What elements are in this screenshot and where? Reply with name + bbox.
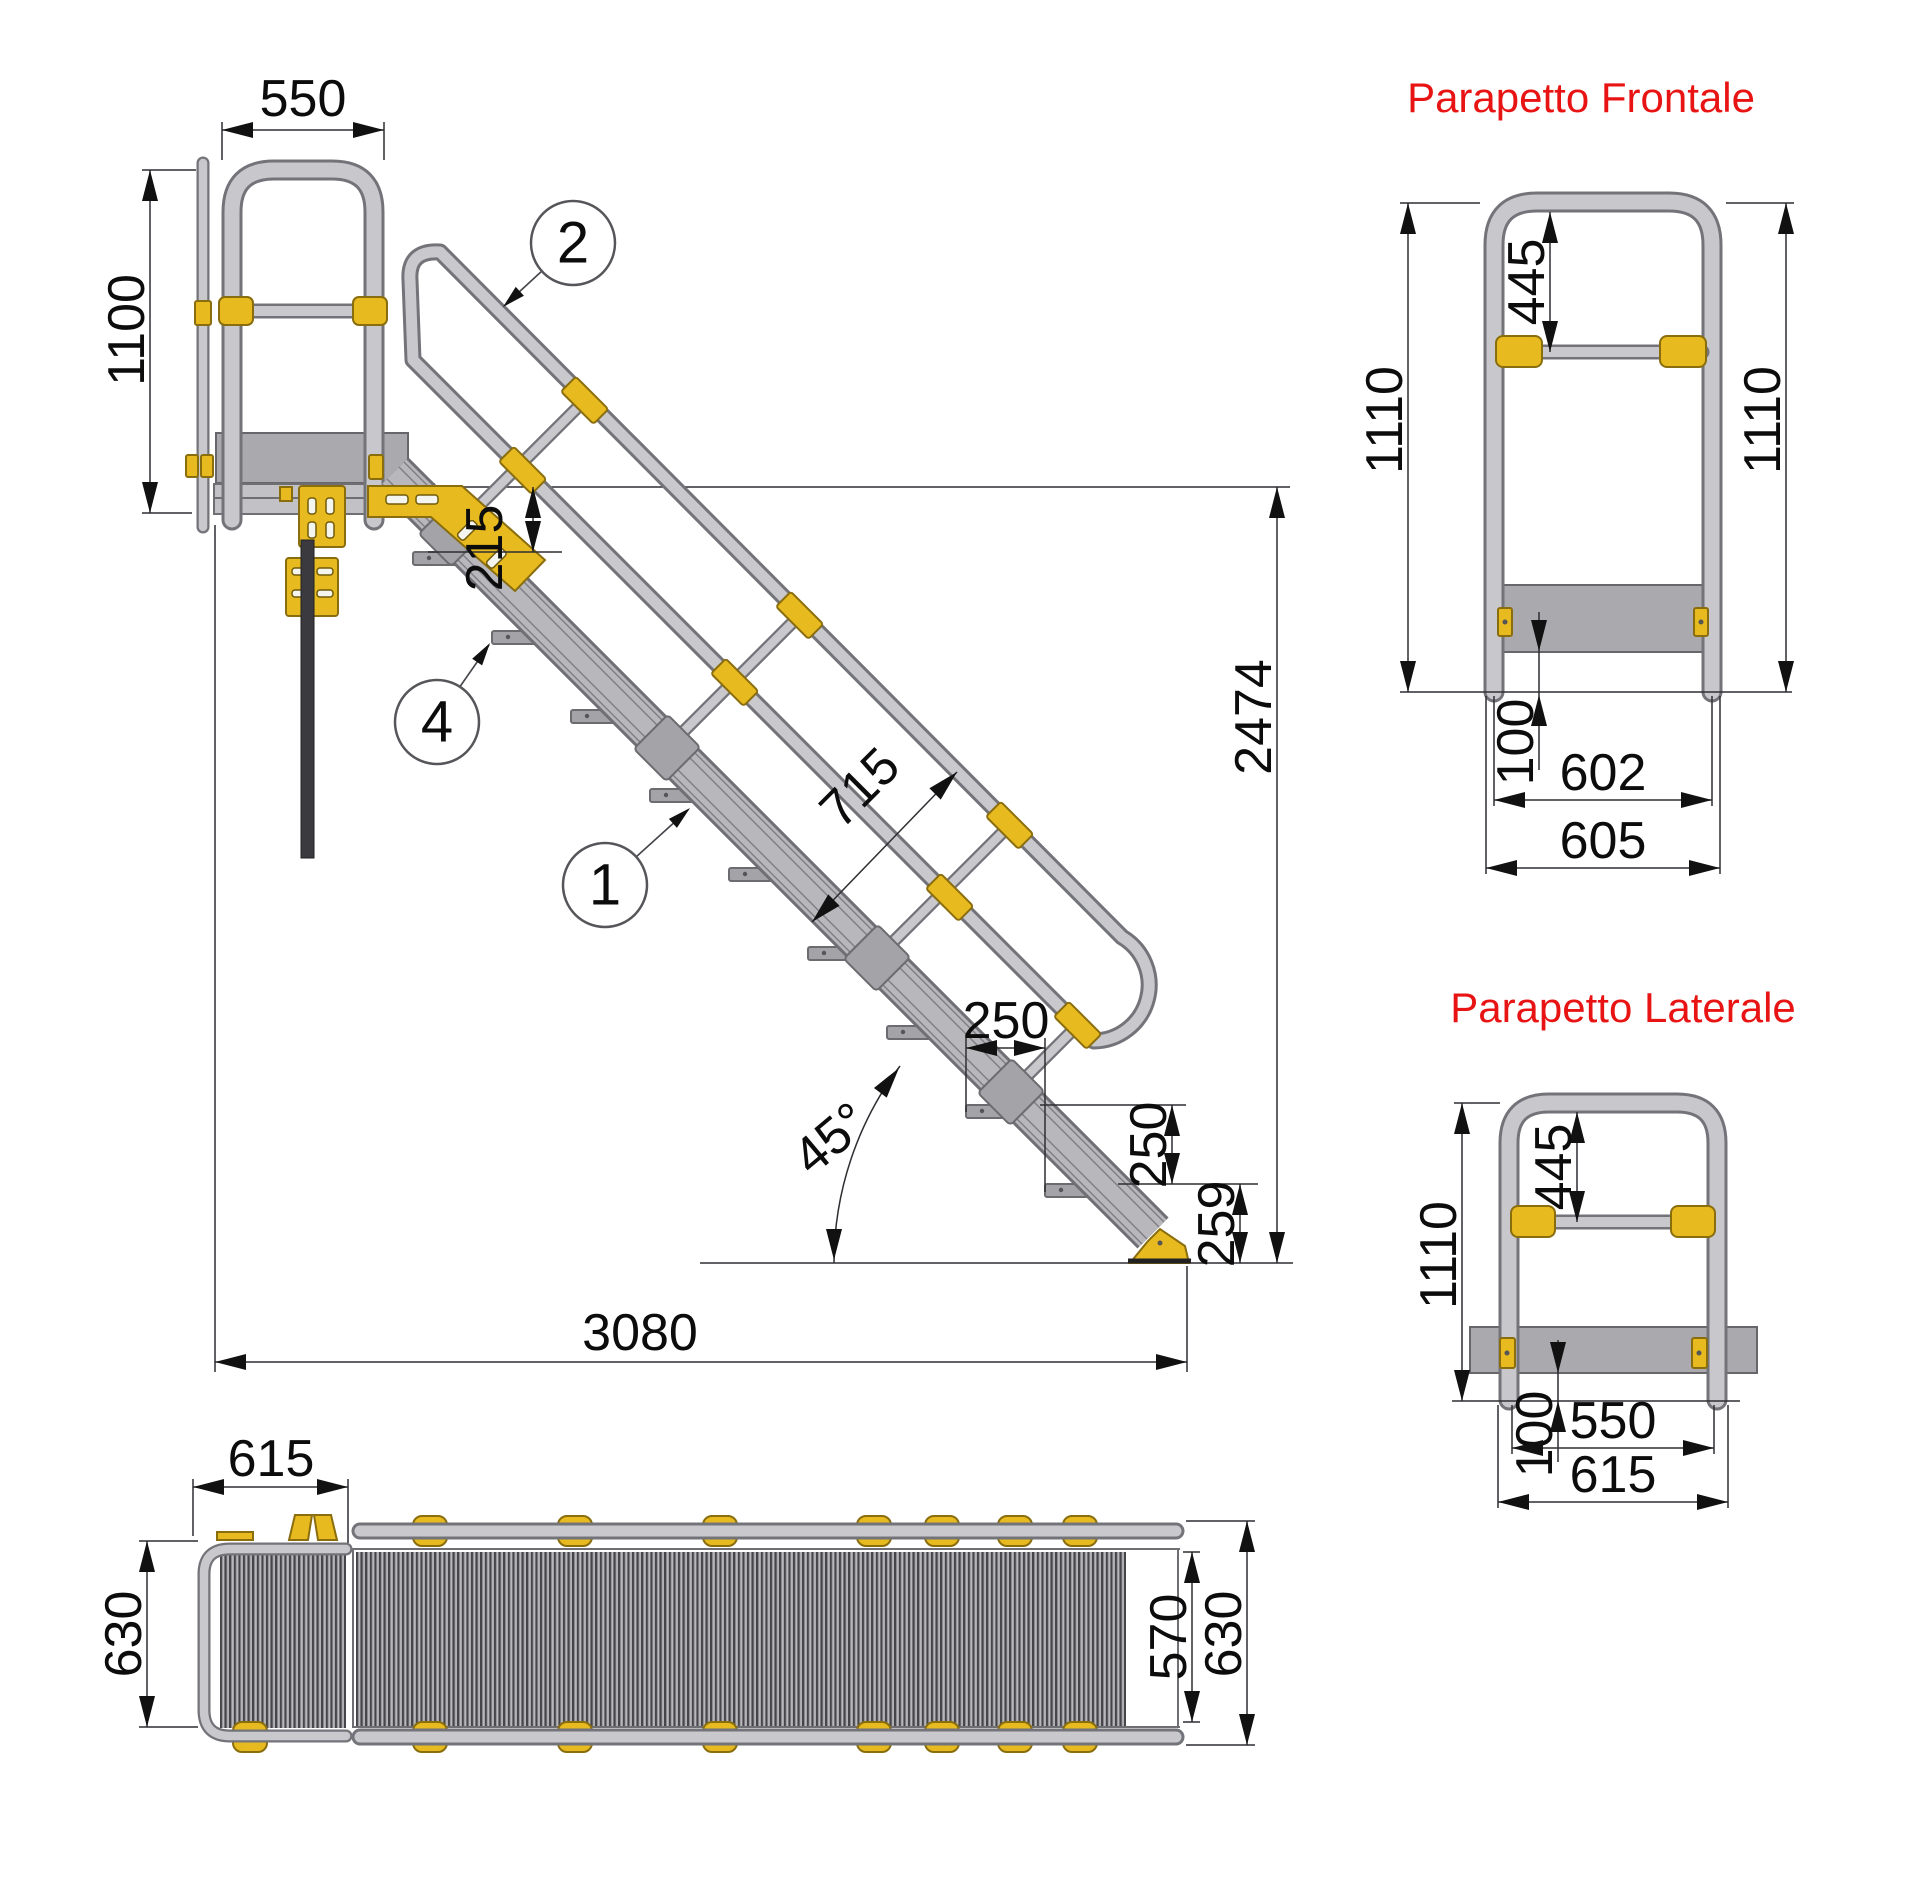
technical-drawing-page: 550 1100 215 715 <box>0 0 1932 1901</box>
deck-clip <box>280 487 292 501</box>
rail-connector <box>353 297 387 325</box>
dim-text: 259 <box>1188 1181 1246 1268</box>
side-guardrail-view: Parapetto Laterale 445 <box>1410 984 1796 1510</box>
dim-text: 630 <box>1195 1591 1253 1678</box>
dim-text: 250 <box>963 992 1050 1050</box>
toe-board <box>1497 585 1709 652</box>
dim-text: 3080 <box>582 1304 698 1362</box>
plan-rail-sleeves <box>233 1516 1097 1752</box>
dim-front-1110-right: 1110 <box>1726 203 1794 692</box>
dim-text: 1100 <box>98 274 156 386</box>
dim-platform-width-550: 550 <box>222 70 384 160</box>
dim-foot-height-259: 259 <box>1188 1181 1248 1268</box>
dim-text: 1110 <box>1356 366 1414 474</box>
dim-angle-45: 45° <box>782 1063 905 1260</box>
front-guardrail-title: Parapetto Frontale <box>1407 74 1755 121</box>
drawing-canvas: 550 1100 215 715 <box>0 0 1932 1901</box>
balloon-stringer: 4 <box>395 640 495 764</box>
dim-text: 100 <box>1487 699 1545 786</box>
handrail <box>410 252 1149 1049</box>
dim-text: 1110 <box>1410 1201 1468 1309</box>
rail-connector <box>219 297 253 325</box>
rail-connector <box>1660 336 1706 367</box>
dim-text: 602 <box>1560 744 1647 802</box>
dim-text: 630 <box>95 1591 153 1678</box>
balloon-number: 1 <box>589 853 621 918</box>
balloon-number: 4 <box>421 690 453 755</box>
dim-text: 45° <box>782 1091 880 1186</box>
dim-text: 615 <box>228 1430 315 1488</box>
leg-clip <box>369 455 383 479</box>
dim-text: 715 <box>809 737 911 839</box>
dim-front-445: 445 <box>1498 212 1558 352</box>
balloon-handrail: 2 <box>499 201 615 311</box>
dim-text: 250 <box>1120 1102 1178 1189</box>
dim-total-height-2474: 2474 <box>1225 487 1285 1263</box>
dim-text: 550 <box>1570 1392 1657 1450</box>
dim-plan-570: 570 <box>1140 1552 1200 1722</box>
dim-text: 445 <box>1525 1124 1583 1211</box>
dim-guardrail-height-1100: 1100 <box>98 170 196 513</box>
dim-text: 2474 <box>1225 659 1283 775</box>
dim-plan-630-left: 630 <box>95 1541 198 1727</box>
wall-post <box>186 163 213 527</box>
dim-text: 1110 <box>1734 366 1792 474</box>
dim-text: 445 <box>1498 239 1556 326</box>
dim-plan-630-right: 630 <box>1186 1521 1255 1745</box>
plan-wall-bracket <box>217 1515 337 1540</box>
balloon-tread: 1 <box>563 804 694 927</box>
dim-text: 605 <box>1560 812 1647 870</box>
dim-text: 215 <box>456 505 514 592</box>
post-clip <box>186 455 198 477</box>
rail-connector <box>1671 1206 1715 1237</box>
post-clip <box>201 455 213 477</box>
side-guardrail-title: Parapetto Laterale <box>1450 984 1796 1031</box>
bracket-tongue <box>299 486 345 547</box>
platform-frame-tube <box>204 1549 346 1736</box>
front-guardrail-view: Parapetto Frontale 445 <box>1356 74 1794 876</box>
balloon-number: 2 <box>557 211 589 276</box>
dim-text: 570 <box>1140 1594 1198 1681</box>
post-clip <box>195 301 211 325</box>
dim-text: 100 <box>1506 1391 1564 1478</box>
dim-text: 615 <box>1570 1446 1657 1504</box>
plan-view: 615 630 570 <box>95 1430 1255 1752</box>
main-side-view: 550 1100 215 715 <box>98 70 1285 1372</box>
dim-side-445: 445 <box>1525 1112 1585 1222</box>
dim-text: 550 <box>260 70 347 128</box>
rail-connector <box>1496 336 1542 367</box>
support-post <box>286 540 338 858</box>
